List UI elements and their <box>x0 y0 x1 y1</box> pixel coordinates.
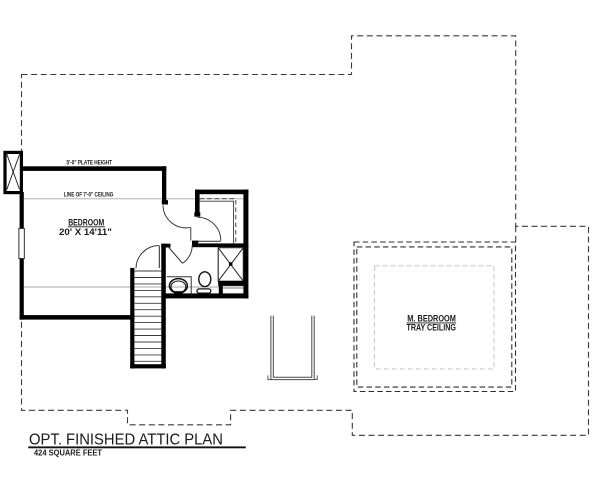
svg-text:TRAY CEILING: TRAY CEILING <box>407 323 456 333</box>
svg-text:424 SQUARE FEET: 424 SQUARE FEET <box>34 448 102 457</box>
svg-text:20' X 14'11": 20' X 14'11" <box>59 227 112 237</box>
svg-text:LINE OF 7'-0" CEILING: LINE OF 7'-0" CEILING <box>64 192 114 199</box>
svg-text:OPT. FINISHED ATTIC PLAN: OPT. FINISHED ATTIC PLAN <box>29 432 223 449</box>
svg-text:5'-0" PLATE HEIGHT: 5'-0" PLATE HEIGHT <box>67 159 113 166</box>
